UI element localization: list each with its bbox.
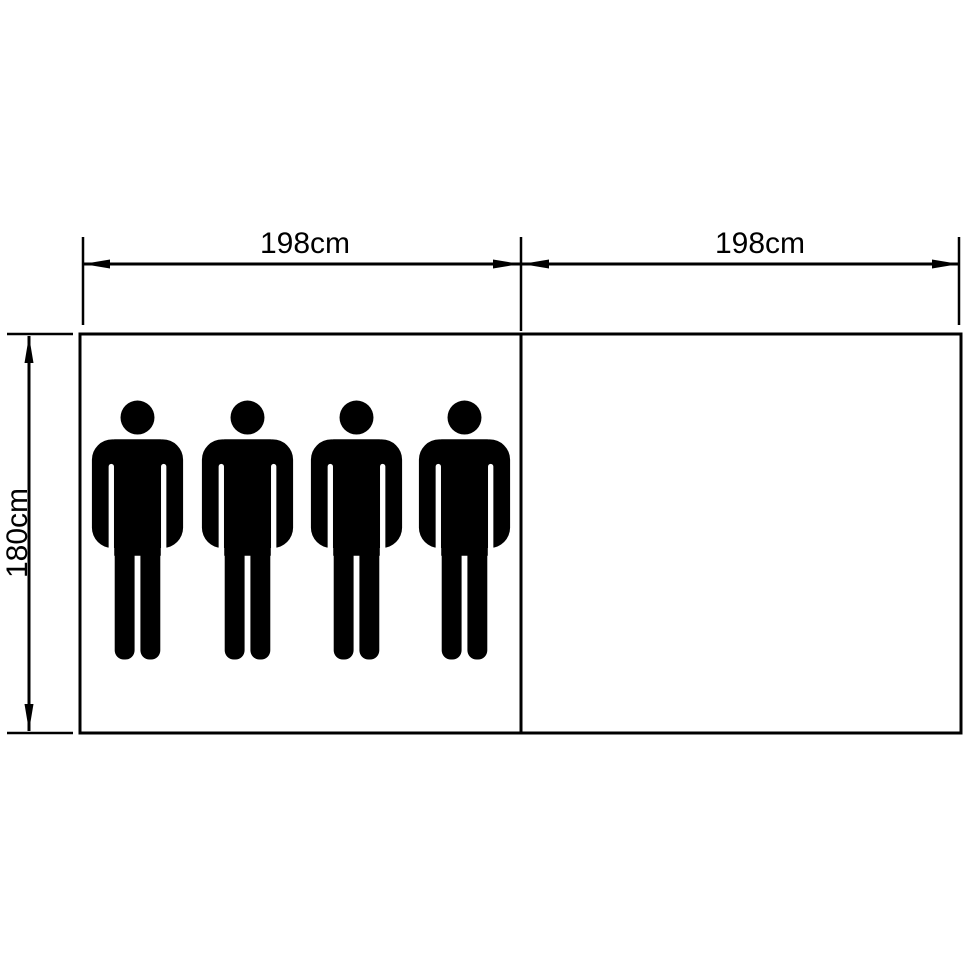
height-label: 180cm bbox=[1, 488, 34, 578]
arrowhead-right-icon bbox=[932, 260, 959, 269]
width-dimension-right: 198cm bbox=[522, 227, 959, 325]
arrowhead-left-icon bbox=[522, 260, 549, 269]
arrowhead-left-icon bbox=[83, 260, 110, 269]
width-label-right: 198cm bbox=[715, 227, 805, 260]
height-dimension: 180cm bbox=[1, 334, 73, 733]
width-label-left: 198cm bbox=[260, 227, 350, 260]
arrowhead-right-icon bbox=[493, 260, 520, 269]
width-dimension-left: 198cm bbox=[83, 227, 521, 331]
arrowhead-up-icon bbox=[25, 336, 34, 363]
arrowhead-down-icon bbox=[25, 704, 34, 731]
dimension-diagram: 198cm 198cm 180cm bbox=[0, 0, 965, 965]
diagram-canvas: 198cm 198cm 180cm bbox=[0, 0, 965, 965]
